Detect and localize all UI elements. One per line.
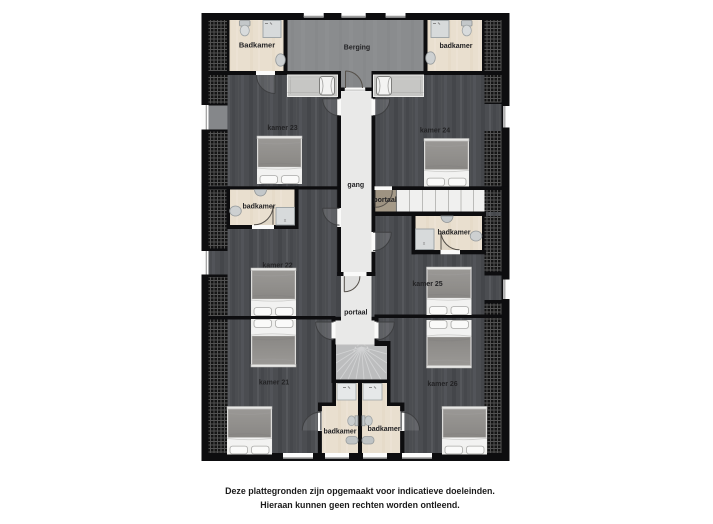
svg-text:badkamer: badkamer bbox=[437, 229, 470, 236]
svg-text:badkamer: badkamer bbox=[242, 203, 275, 210]
svg-text:badkamer: badkamer bbox=[367, 426, 400, 433]
svg-text:portaal: portaal bbox=[344, 309, 367, 316]
svg-text:Deze plattegronden zijn opgema: Deze plattegronden zijn opgemaakt voor i… bbox=[225, 486, 495, 496]
svg-text:badkamer: badkamer bbox=[323, 428, 356, 435]
svg-text:kamer 22: kamer 22 bbox=[262, 262, 292, 269]
svg-text:Berging: Berging bbox=[344, 45, 370, 52]
svg-text:kamer 23: kamer 23 bbox=[267, 125, 297, 132]
svg-text:gang: gang bbox=[347, 182, 364, 189]
svg-text:kamer 24: kamer 24 bbox=[420, 127, 450, 134]
svg-text:kamer 21: kamer 21 bbox=[259, 379, 289, 386]
svg-text:kamer 26: kamer 26 bbox=[427, 381, 457, 388]
svg-text:Hieraan kunnen geen rechten wo: Hieraan kunnen geen rechten worden ontle… bbox=[260, 500, 460, 510]
svg-text:kamer 25: kamer 25 bbox=[412, 281, 442, 288]
svg-text:Badkamer: Badkamer bbox=[239, 41, 275, 50]
svg-text:portaal: portaal bbox=[373, 197, 396, 204]
svg-text:badkamer: badkamer bbox=[439, 43, 472, 50]
